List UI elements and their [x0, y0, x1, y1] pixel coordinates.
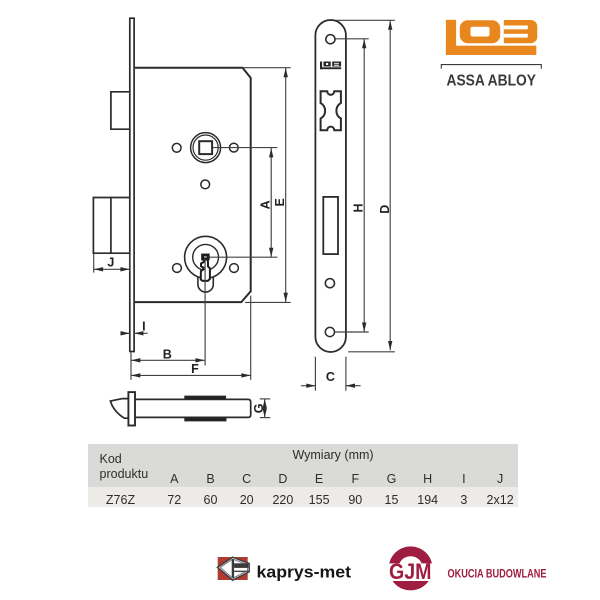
svg-text:kaprys-met: kaprys-met — [257, 564, 352, 582]
svg-text:I: I — [142, 320, 145, 334]
svg-text:A: A — [258, 200, 272, 209]
svg-text:C: C — [326, 370, 335, 384]
svg-text:OKUCIA BUDOWLANE: OKUCIA BUDOWLANE — [448, 567, 547, 581]
svg-text:GJM: GJM — [389, 559, 432, 584]
svg-text:D: D — [378, 205, 392, 214]
svg-text:ASSA ABLOY: ASSA ABLOY — [447, 73, 537, 90]
svg-text:G: G — [252, 404, 266, 414]
svg-text:F: F — [191, 362, 199, 376]
svg-text:H: H — [352, 203, 366, 212]
svg-text:E: E — [273, 198, 287, 206]
svg-text:J: J — [107, 256, 114, 270]
svg-text:B: B — [163, 347, 172, 361]
